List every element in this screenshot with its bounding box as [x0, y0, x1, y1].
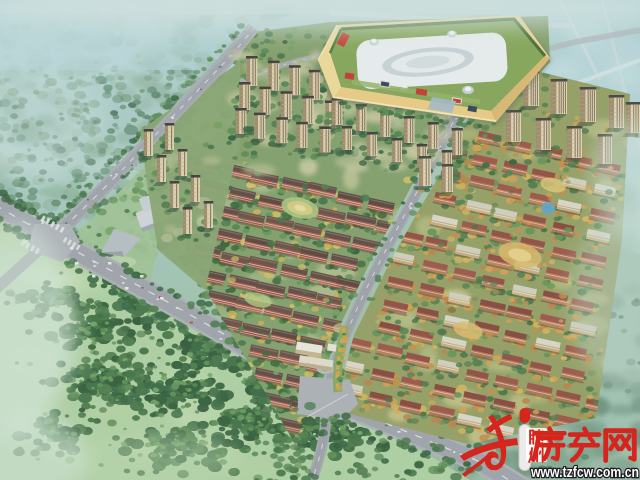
svg-text:www.tzfcw.com.cn: www.tzfcw.com.cn — [530, 465, 639, 480]
